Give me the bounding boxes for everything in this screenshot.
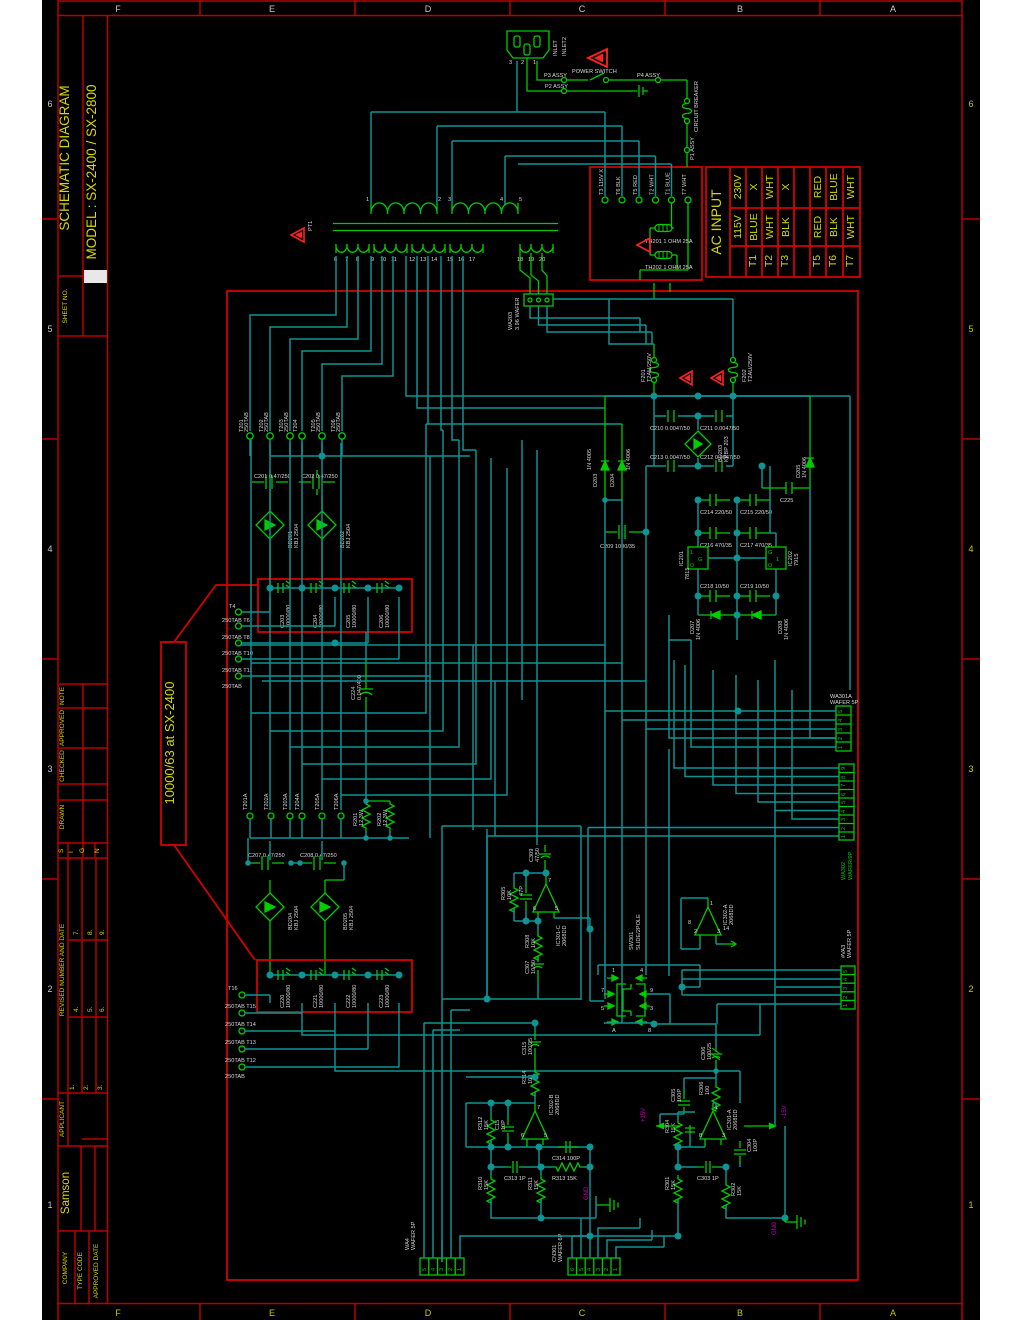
svg-text:10P: 10P [501, 1120, 507, 1130]
svg-text:SHEET NO.: SHEET NO. [62, 288, 69, 323]
svg-text:T5: T5 [811, 255, 823, 267]
svg-text:WHT: WHT [845, 174, 857, 198]
svg-text:10: 10 [380, 257, 386, 263]
svg-text:TH201 1 OHM 25A: TH201 1 OHM 25A [645, 239, 693, 245]
svg-text:12.3W: 12.3W [359, 809, 365, 826]
svg-text:6: 6 [570, 1268, 576, 1271]
svg-text:T204: T204 [293, 419, 299, 432]
svg-text:WA302: WA302 [841, 862, 847, 880]
svg-text:T2AU/250V: T2AU/250V [647, 353, 653, 382]
svg-text:C214 220/50: C214 220/50 [700, 510, 732, 516]
svg-text:T7 WHT: T7 WHT [682, 174, 688, 195]
svg-text:6: 6 [47, 99, 52, 109]
svg-text:250TAB: 250TAB [284, 412, 290, 432]
svg-text:2: 2 [968, 984, 973, 994]
svg-text:BLK: BLK [828, 217, 840, 237]
svg-text:17: 17 [469, 257, 475, 263]
svg-text:6: 6 [841, 793, 847, 796]
svg-text:10K: 10K [531, 938, 537, 948]
svg-text:AC INPUT: AC INPUT [708, 189, 724, 255]
svg-text:4: 4 [431, 1268, 437, 1271]
svg-text:2068DD: 2068DD [555, 1094, 561, 1115]
svg-text:3: 3 [722, 1133, 725, 1139]
svg-text:WHT: WHT [845, 214, 857, 238]
svg-text:3: 3 [717, 929, 720, 935]
svg-text:10000/80: 10000/80 [385, 985, 391, 1008]
svg-text:10000/80: 10000/80 [385, 605, 391, 628]
svg-text:INLET: INLET [553, 40, 559, 56]
svg-text:3.96 WAFER: 3.96 WAFER [515, 298, 521, 330]
svg-text:G: G [79, 848, 86, 853]
svg-text:T5 RED: T5 RED [633, 175, 639, 195]
svg-text:WAFER 6P: WAFER 6P [558, 1233, 564, 1262]
svg-text:2.: 2. [83, 1084, 90, 1090]
svg-text:250TAB T8: 250TAB T8 [222, 635, 250, 641]
svg-text:250TAB T10: 250TAB T10 [222, 651, 253, 657]
svg-text:1: 1 [843, 1004, 849, 1007]
svg-text:E: E [269, 4, 275, 14]
svg-text:T4: T4 [229, 604, 236, 610]
svg-text:5: 5 [579, 1268, 585, 1271]
svg-text:4: 4 [843, 978, 849, 981]
svg-text:10/50: 10/50 [531, 960, 537, 974]
svg-text:9: 9 [841, 767, 847, 770]
svg-text:D: D [425, 4, 432, 14]
svg-text:1: 1 [612, 968, 615, 974]
svg-text:B: B [737, 4, 743, 14]
svg-text:10000/80: 10000/80 [286, 605, 292, 628]
svg-text:TH202 1 OHM 25A: TH202 1 OHM 25A [645, 265, 693, 271]
svg-text:F: F [115, 4, 121, 14]
svg-text:2: 2 [438, 197, 441, 203]
svg-text:T203A: T203A [283, 793, 289, 810]
svg-text:250TAB T12: 250TAB T12 [225, 1058, 256, 1064]
svg-text:D: D [425, 1308, 432, 1318]
svg-text:C202 0.47/250: C202 0.47/250 [301, 474, 338, 480]
svg-text:T16: T16 [228, 986, 238, 992]
svg-text:BLUE: BLUE [828, 173, 840, 200]
svg-text:2068DD: 2068DD [733, 1109, 739, 1130]
svg-text:4.: 4. [73, 1006, 80, 1012]
svg-text:C215 220/50: C215 220/50 [740, 510, 772, 516]
svg-text:PT1: PT1 [308, 221, 314, 231]
svg-text:3.: 3. [97, 1084, 104, 1090]
svg-text:8.: 8. [87, 929, 94, 935]
svg-text:BLK: BLK [780, 217, 792, 237]
svg-text:C211 0.0047/50: C211 0.0047/50 [700, 426, 739, 432]
svg-text:R313 15K: R313 15K [552, 1176, 577, 1182]
svg-text:4: 4 [587, 1268, 593, 1271]
svg-text:12: 12 [409, 257, 415, 263]
svg-text:T6 BLK: T6 BLK [616, 176, 622, 195]
svg-text:C: C [579, 4, 586, 14]
svg-text:C213 0.0047/50: C213 0.0047/50 [650, 455, 690, 461]
svg-text:115V: 115V [732, 215, 744, 239]
svg-text:C225: C225 [780, 498, 793, 504]
svg-text:GND: GND [772, 1221, 778, 1235]
svg-text:1: 1 [690, 550, 693, 556]
svg-text:P1 ASSY: P1 ASSY [690, 137, 696, 160]
svg-text:C217 470/35: C217 470/35 [740, 543, 772, 549]
svg-text:T204A: T204A [295, 793, 301, 810]
svg-text:3: 3 [843, 987, 849, 990]
svg-text:100P: 100P [753, 1139, 759, 1152]
svg-text:C201 0.47/250: C201 0.47/250 [254, 474, 291, 480]
svg-text:3: 3 [841, 818, 847, 821]
svg-text:11: 11 [391, 257, 397, 263]
svg-text:10000/80: 10000/80 [352, 985, 358, 1008]
svg-text:2: 2 [47, 984, 52, 994]
svg-text:7.: 7. [73, 929, 80, 935]
svg-text:250TAB: 250TAB [336, 412, 342, 432]
svg-text:1: 1 [968, 1200, 973, 1210]
svg-text:WHT: WHT [764, 214, 776, 238]
svg-text:5: 5 [422, 1268, 428, 1271]
svg-text:5: 5 [843, 970, 849, 973]
svg-text:250TAB: 250TAB [264, 412, 270, 432]
svg-text:5: 5 [519, 197, 522, 203]
svg-text:0.047/400: 0.047/400 [357, 675, 363, 700]
svg-text:9.: 9. [99, 929, 106, 935]
svg-text:3: 3 [439, 1268, 445, 1271]
svg-text:APPROVED: APPROVED [59, 710, 66, 746]
svg-text:KBJ 2504: KBJ 2504 [294, 524, 300, 548]
svg-text:-15V: -15V [782, 1105, 788, 1118]
svg-text:47/50: 47/50 [535, 848, 541, 862]
svg-text:C218 10/50: C218 10/50 [700, 584, 729, 590]
svg-text:WAFER 5P: WAFER 5P [830, 700, 859, 706]
svg-text:250TAB: 250TAB [222, 684, 242, 690]
svg-text:100/25: 100/25 [528, 1038, 534, 1055]
svg-text:5: 5 [47, 324, 52, 334]
svg-text:1N 4006: 1N 4006 [802, 457, 808, 478]
svg-text:3: 3 [47, 764, 52, 774]
svg-text:+15V: +15V [641, 1108, 647, 1122]
svg-text:1: 1 [710, 901, 713, 907]
svg-text:15K: 15K [737, 1186, 743, 1196]
svg-text:S: S [58, 848, 65, 853]
svg-text:KBJ 2504: KBJ 2504 [294, 906, 300, 930]
svg-text:8: 8 [699, 1133, 702, 1139]
svg-text:2068DD: 2068DD [729, 904, 735, 925]
svg-text:O: O [768, 563, 773, 569]
svg-text:1: 1 [776, 557, 779, 563]
svg-text:2: 2 [694, 929, 697, 935]
svg-text:KBJ 2504: KBJ 2504 [349, 906, 355, 930]
svg-text:1: 1 [366, 197, 369, 203]
svg-text:KPBP 203: KPBP 203 [724, 436, 730, 462]
svg-text:E: E [269, 1308, 275, 1318]
svg-text:IC201: IC201 [679, 551, 685, 566]
svg-text:4: 4 [838, 719, 844, 722]
svg-text:CIRCUIT BREAKER: CIRCUIT BREAKER [694, 81, 700, 132]
svg-text:6: 6 [968, 99, 973, 109]
svg-text:A: A [612, 1028, 616, 1034]
svg-text:GND: GND [584, 1186, 590, 1200]
svg-text:T202A: T202A [264, 793, 270, 810]
svg-text:SCHEMATIC DIAGRAM: SCHEMATIC DIAGRAM [57, 85, 72, 230]
svg-text:APPLICANT: APPLICANT [59, 1101, 66, 1137]
svg-text:BLUE: BLUE [748, 213, 760, 240]
svg-text:2068DD: 2068DD [562, 925, 568, 946]
svg-text:10000/80: 10000/80 [319, 985, 325, 1008]
svg-text:250TAB T11: 250TAB T11 [222, 668, 252, 674]
svg-text:5.: 5. [87, 1006, 94, 1012]
svg-text:C313 1P: C313 1P [504, 1176, 526, 1182]
svg-text:15K: 15K [484, 1120, 490, 1130]
svg-text:1: 1 [533, 60, 536, 66]
svg-text:MODEL : SX-2400 / SX-2800: MODEL : SX-2400 / SX-2800 [84, 84, 99, 259]
svg-text:12.3W: 12.3W [383, 809, 389, 826]
svg-text:5: 5 [544, 1133, 547, 1139]
svg-text:5: 5 [601, 1006, 604, 1012]
svg-text:C219 10/50: C219 10/50 [740, 584, 769, 590]
svg-text:G: G [698, 557, 702, 563]
svg-text:D203: D203 [593, 474, 599, 487]
svg-text:230V: 230V [732, 175, 744, 200]
svg-text:6.: 6. [99, 1006, 106, 1012]
svg-text:4: 4 [640, 968, 643, 974]
svg-text:15K: 15K [534, 1180, 540, 1190]
svg-text:10000/80: 10000/80 [286, 985, 292, 1008]
svg-text:N: N [94, 848, 101, 853]
svg-text:7915: 7915 [794, 554, 800, 566]
svg-text:7: 7 [601, 988, 604, 994]
svg-text:P4 ASSY: P4 ASSY [637, 73, 660, 79]
svg-text:C303 1P: C303 1P [697, 1176, 719, 1182]
svg-text:3: 3 [509, 60, 512, 66]
svg-text:4: 4 [841, 810, 847, 813]
svg-text:T2 WHT: T2 WHT [650, 174, 656, 195]
svg-text:5: 5 [968, 324, 973, 334]
svg-text:4: 4 [500, 197, 503, 203]
svg-text:3: 3 [838, 728, 844, 731]
svg-text:A: A [890, 4, 896, 14]
svg-text:TYPE CODE: TYPE CODE [77, 1252, 84, 1290]
svg-text:10000/80: 10000/80 [352, 605, 358, 628]
svg-text:2: 2 [838, 737, 844, 740]
svg-text:WHT: WHT [764, 174, 776, 198]
svg-text:1: 1 [838, 746, 844, 749]
svg-text:F: F [115, 1308, 121, 1318]
svg-text:WA203: WA203 [508, 312, 514, 330]
svg-text:7: 7 [537, 1105, 540, 1111]
svg-text:250TAB T15: 250TAB T15 [225, 1004, 256, 1010]
svg-text:RED: RED [812, 175, 824, 198]
svg-text:C: C [579, 1308, 586, 1318]
svg-text:T1 BLUE: T1 BLUE [666, 172, 672, 195]
svg-text:3: 3 [968, 764, 973, 774]
svg-text:2: 2 [841, 827, 847, 830]
svg-text:9: 9 [650, 988, 653, 994]
svg-text:6: 6 [521, 1133, 524, 1139]
svg-text:1N 4006: 1N 4006 [626, 449, 632, 470]
svg-text:2: 2 [521, 60, 524, 66]
svg-text:WAFER 5P: WAFER 5P [411, 1221, 417, 1250]
svg-text:B: B [737, 1308, 743, 1318]
svg-text:T201A: T201A [243, 793, 249, 810]
svg-text:A: A [890, 1308, 896, 1318]
svg-text:8: 8 [841, 776, 847, 779]
svg-text:RED: RED [812, 215, 824, 238]
svg-text:250TAB: 250TAB [225, 1074, 245, 1080]
svg-text:1: 1 [47, 1200, 52, 1210]
svg-text:Samson: Samson [60, 1172, 72, 1214]
svg-text:D204: D204 [610, 474, 616, 487]
svg-text:T1: T1 [747, 255, 759, 267]
svg-text:10K: 10K [507, 890, 513, 900]
svg-text:1N 4006: 1N 4006 [784, 619, 790, 640]
svg-text:5: 5 [841, 801, 847, 804]
svg-text:SLIDE/2POLE: SLIDE/2POLE [636, 914, 642, 950]
svg-text:APPROVED DATE: APPROVED DATE [93, 1243, 100, 1298]
svg-text:15K: 15K [671, 1123, 677, 1133]
svg-text:5: 5 [838, 710, 844, 713]
svg-text:7: 7 [548, 878, 551, 884]
svg-text:7: 7 [841, 784, 847, 787]
svg-text:2: 2 [448, 1268, 454, 1271]
svg-text:POWER SWITCH: POWER SWITCH [572, 69, 617, 75]
svg-text:C216 470/35: C216 470/35 [700, 543, 732, 549]
svg-text:5: 5 [555, 906, 558, 912]
svg-text:14: 14 [431, 257, 437, 263]
svg-text:10000/63 at SX-2400: 10000/63 at SX-2400 [162, 682, 177, 805]
svg-text:T3 115V X: T3 115V X [599, 169, 605, 195]
svg-text:WAFER 5P: WAFER 5P [847, 929, 853, 958]
svg-text:INLET2: INLET2 [562, 37, 568, 56]
svg-text:WAFER/9P: WAFER/9P [848, 851, 854, 880]
svg-text:CHECKED: CHECKED [59, 750, 66, 782]
svg-text:47P: 47P [519, 886, 525, 896]
svg-text:1N 4005: 1N 4005 [587, 449, 593, 470]
svg-text:1.: 1. [69, 1084, 76, 1090]
svg-text:NOTE: NOTE [59, 686, 66, 705]
svg-text:15K: 15K [484, 1180, 490, 1190]
svg-text:1: 1 [841, 835, 847, 838]
svg-text:8: 8 [688, 920, 691, 926]
svg-text:T6: T6 [827, 255, 839, 267]
svg-text:250TAB: 250TAB [316, 412, 322, 432]
svg-text:2: 2 [843, 996, 849, 999]
svg-text:3: 3 [448, 197, 451, 203]
svg-text:REVISED NUMBER AND DATE: REVISED NUMBER AND DATE [59, 923, 66, 1016]
svg-text:250TAB: 250TAB [244, 412, 250, 432]
svg-text:P3 ASSY: P3 ASSY [544, 73, 567, 79]
svg-text:C210 0.0047/50: C210 0.0047/50 [650, 426, 690, 432]
svg-text:C314 100P: C314 100P [552, 1156, 580, 1162]
svg-text:100/25: 100/25 [707, 1043, 713, 1060]
svg-text:250TAB T14: 250TAB T14 [225, 1022, 256, 1028]
svg-text:P2 ASSY: P2 ASSY [545, 84, 568, 90]
svg-text:C207 0.47/250: C207 0.47/250 [248, 853, 285, 859]
svg-text:1N 4006: 1N 4006 [696, 619, 702, 640]
svg-text:250TAB T13: 250TAB T13 [225, 1040, 256, 1046]
svg-text:T2: T2 [763, 255, 775, 267]
svg-text:X: X [780, 183, 792, 190]
svg-text:15K: 15K [671, 1180, 677, 1190]
svg-text:DRAWN: DRAWN [59, 805, 66, 830]
svg-text:100P: 100P [677, 1089, 683, 1102]
svg-text:1: 1 [457, 1268, 463, 1271]
svg-text:T206A: T206A [334, 793, 340, 810]
svg-text:SW301: SW301 [629, 932, 635, 950]
svg-text:7815: 7815 [685, 568, 691, 580]
svg-text:3: 3 [596, 1268, 602, 1271]
svg-text:4: 4 [47, 544, 52, 554]
svg-text:14: 14 [723, 926, 729, 932]
svg-text:1: 1 [613, 1268, 619, 1271]
svg-text:T7: T7 [844, 255, 856, 267]
svg-text:2: 2 [604, 1268, 610, 1271]
svg-text:4: 4 [968, 544, 973, 554]
svg-text:T3: T3 [779, 255, 791, 267]
svg-text:250TAB T6: 250TAB T6 [222, 618, 250, 624]
svg-text:G: G [768, 550, 772, 556]
svg-text:T2AU/250V: T2AU/250V [748, 353, 754, 382]
svg-text:13: 13 [420, 257, 426, 263]
svg-text:C208 0.47/250: C208 0.47/250 [300, 853, 337, 859]
svg-text:6: 6 [533, 906, 536, 912]
svg-text:I: I [68, 851, 75, 853]
svg-text:8: 8 [648, 1028, 651, 1034]
svg-text:COMPANY: COMPANY [62, 1251, 69, 1284]
svg-text:3: 3 [650, 1006, 653, 1012]
svg-text:T205A: T205A [315, 793, 321, 810]
svg-text:X: X [748, 183, 760, 190]
svg-text:KBJ 2504: KBJ 2504 [346, 524, 352, 548]
svg-text:100: 100 [705, 1086, 711, 1095]
